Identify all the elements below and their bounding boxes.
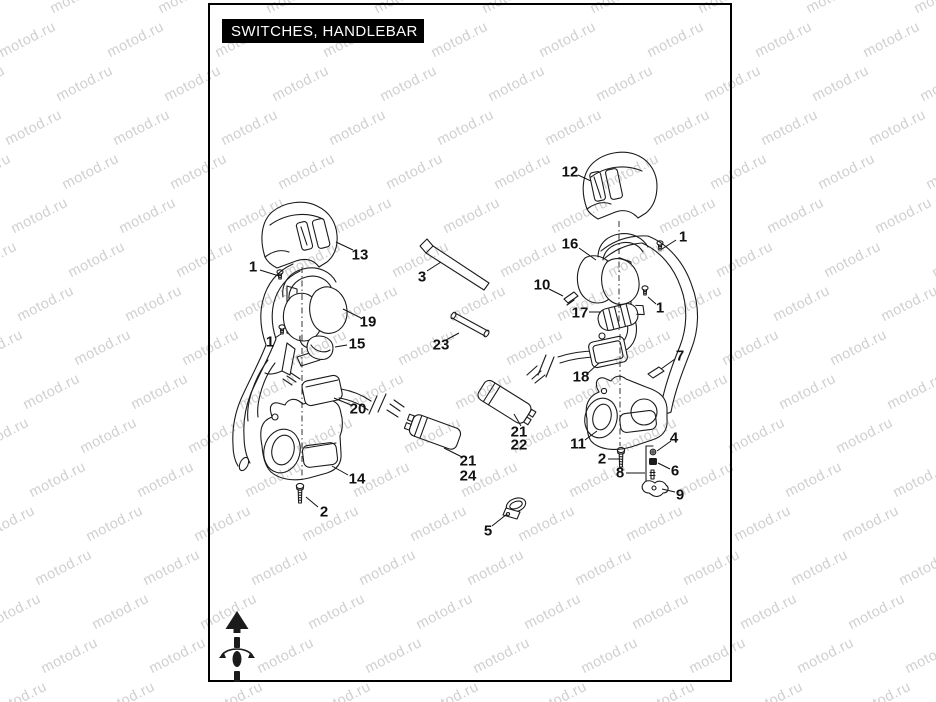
callout-label: 1	[656, 300, 664, 317]
callout-label: 1	[679, 229, 687, 246]
page-title: SWITCHES, HANDLEBAR	[231, 23, 418, 40]
leader-line	[335, 345, 347, 347]
callout-label: 10	[534, 277, 551, 294]
leader-line	[492, 514, 507, 526]
callout-label: 13	[352, 247, 369, 264]
callout-label: 16	[562, 236, 579, 253]
callout-label: 2	[320, 504, 328, 521]
leader-line	[336, 242, 353, 250]
leader-line	[332, 466, 348, 475]
callout-label: 4	[670, 430, 679, 447]
parts-diagram: 1311915120142323212452122121611017118711…	[0, 0, 936, 702]
callout-label: 18	[573, 369, 590, 386]
callout-label: 8	[616, 465, 624, 482]
callout-label: 23	[433, 337, 450, 354]
callout-label: 24	[460, 468, 477, 485]
callout-label: 19	[360, 314, 377, 331]
leader-line	[658, 463, 670, 469]
front-direction-indicator-icon	[219, 611, 255, 682]
tool-rod-3	[420, 239, 489, 290]
title-bar: SWITCHES, HANDLEBAR	[222, 19, 424, 43]
right-switch-assembly	[476, 152, 698, 496]
leader-line	[662, 240, 676, 249]
callout-label: 3	[418, 269, 426, 286]
leader-line	[549, 289, 563, 296]
tool-tube-23	[450, 311, 490, 337]
leader-line	[306, 497, 318, 507]
callout-label: 7	[676, 348, 684, 365]
leader-line	[648, 297, 656, 304]
leader-line	[260, 270, 279, 276]
callout-label: 9	[676, 487, 684, 504]
callout-label: 1	[249, 259, 257, 276]
callout-label: 22	[511, 437, 528, 454]
callout-label: 12	[562, 164, 579, 181]
cable-clamp-5	[503, 495, 528, 519]
callout-label: 1	[266, 334, 274, 351]
callout-label: 17	[572, 305, 589, 322]
catalog-page: SWITCHES, HANDLEBAR	[0, 0, 936, 702]
leader-line	[275, 334, 281, 338]
callout-label: 15	[349, 336, 366, 353]
callout-label: 2	[598, 451, 606, 468]
callout-label: 6	[671, 463, 679, 480]
callout-label: 5	[484, 523, 492, 540]
leader-line	[427, 262, 441, 271]
callout-label: 11	[570, 436, 586, 453]
callout-label: 14	[349, 471, 366, 488]
callout-label: 20	[350, 401, 367, 418]
